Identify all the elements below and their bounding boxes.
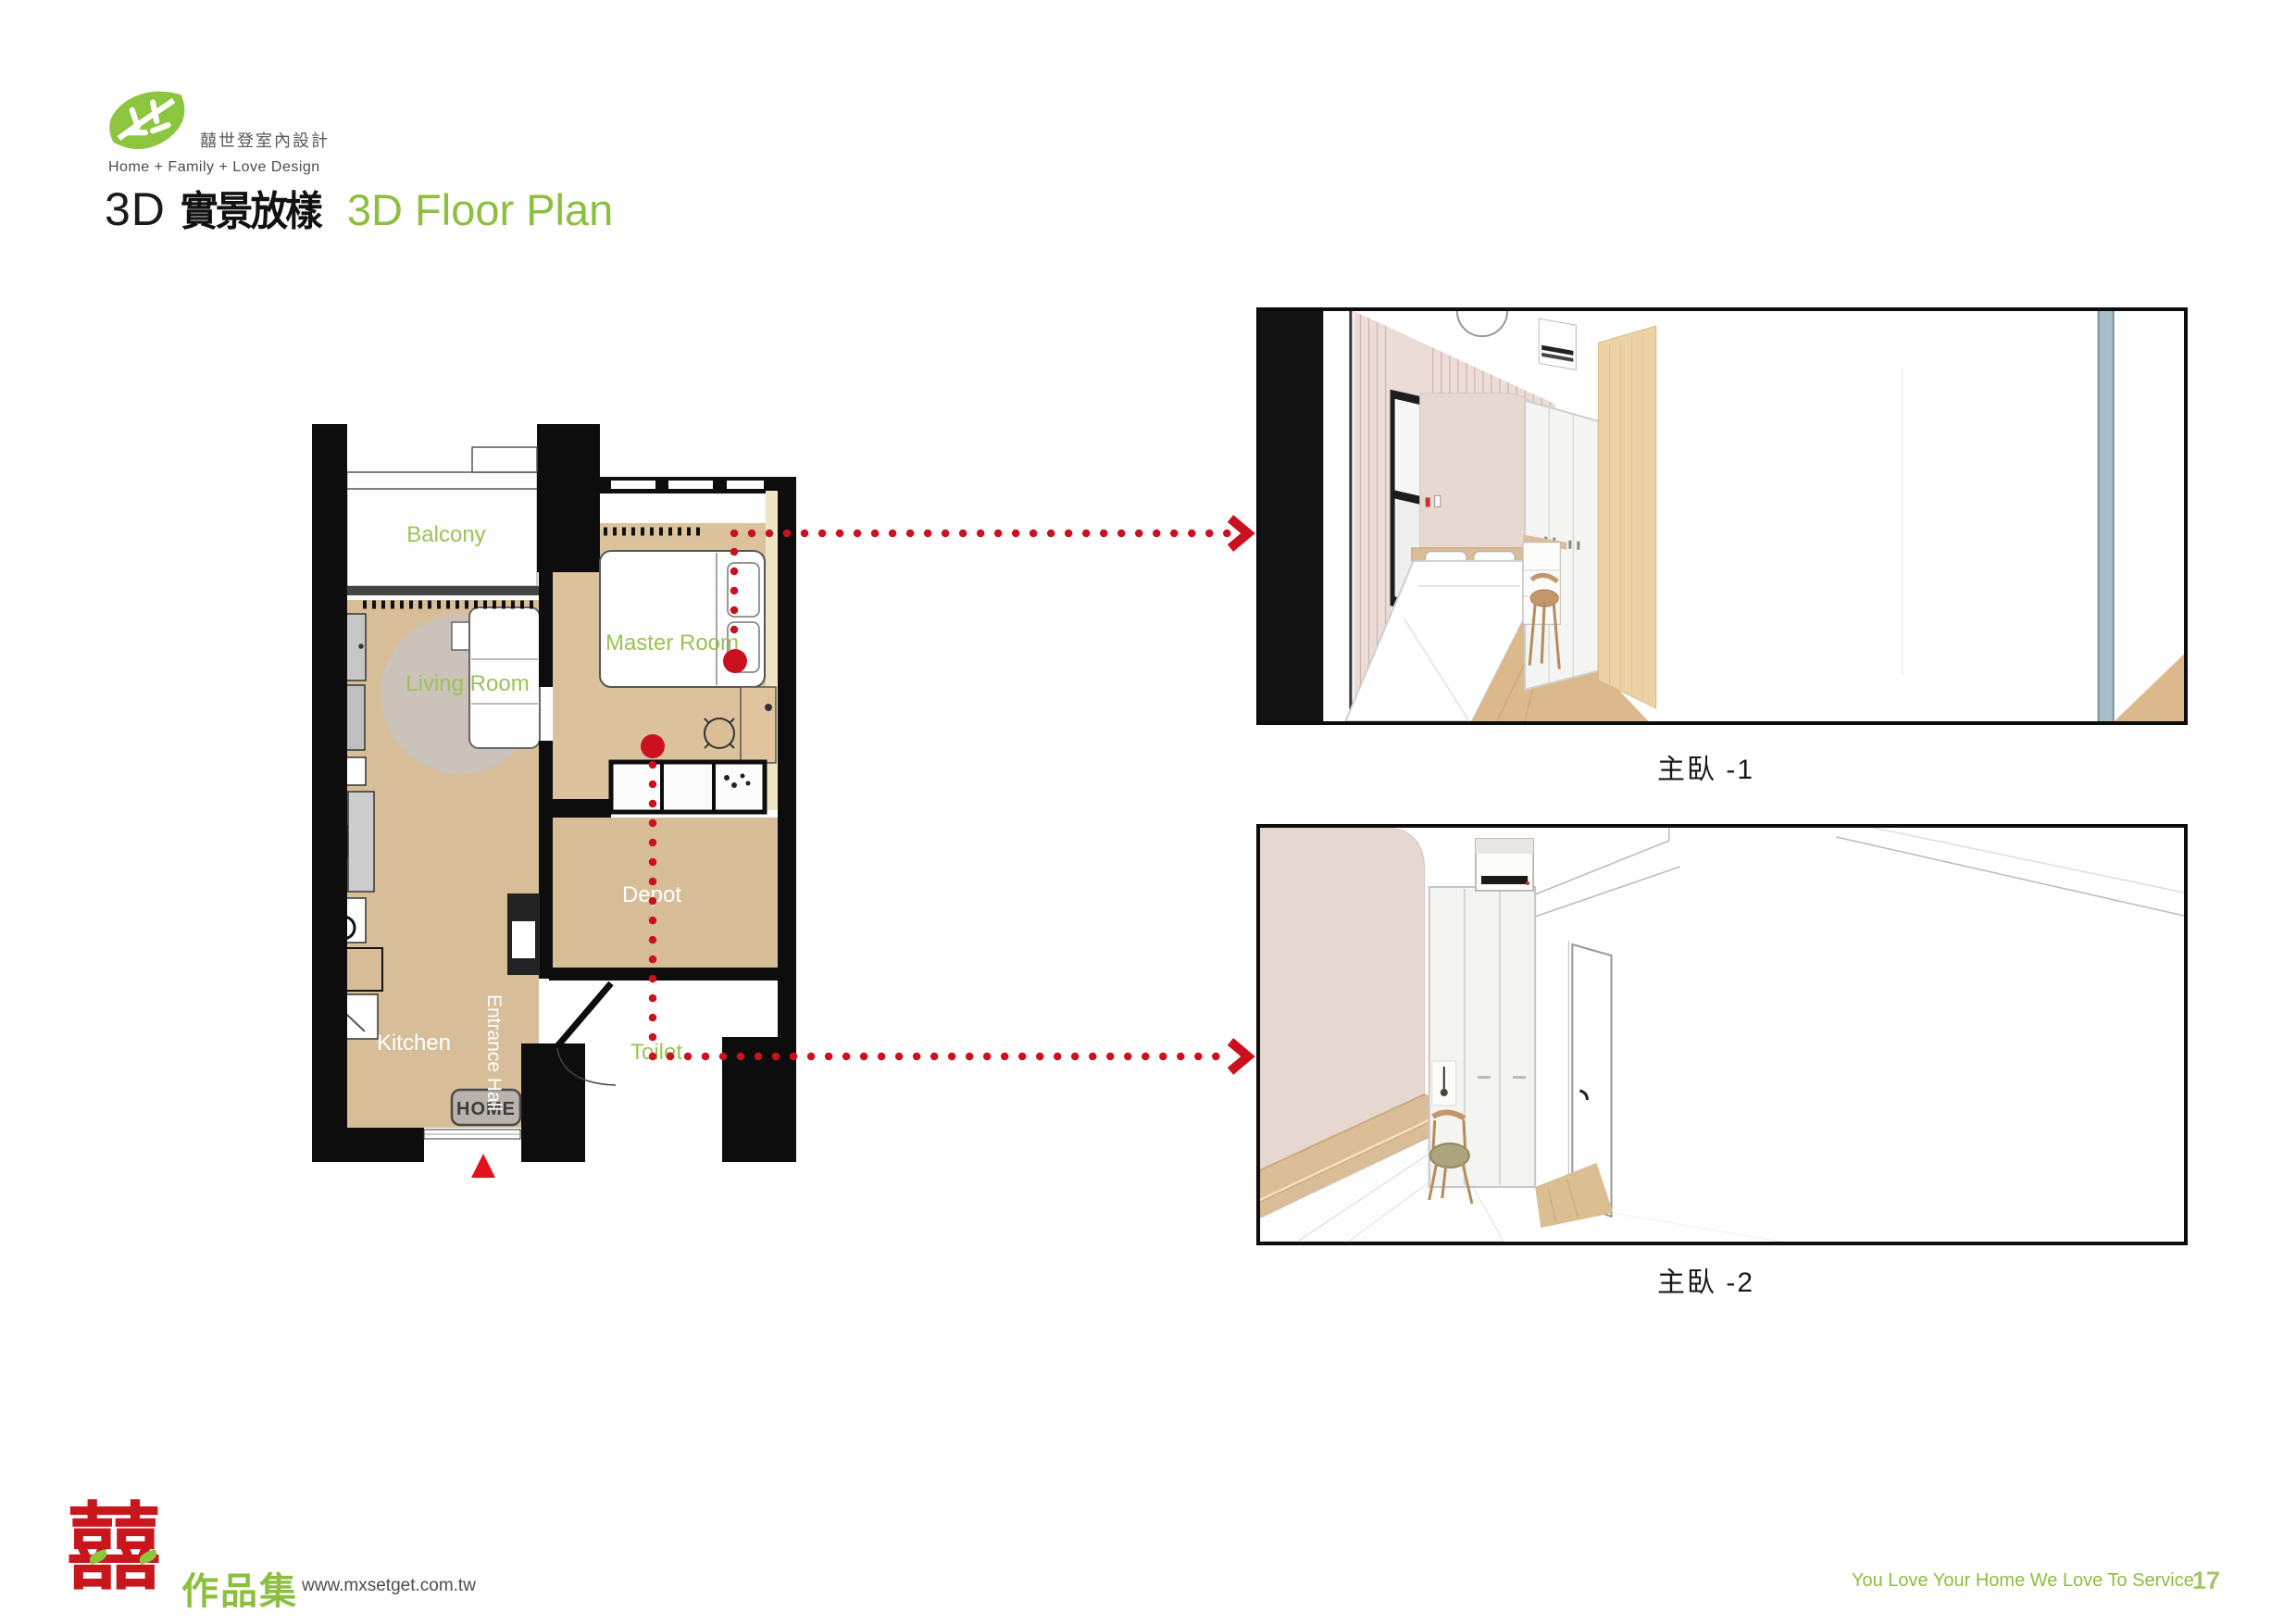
room-label-entrance-hall: Entrance Hall — [483, 994, 505, 1111]
wardrobe-tall — [1429, 887, 1535, 1187]
render-caption-1: 主臥 -1 — [1657, 746, 1754, 787]
website-url: www.mxsetget.com.tw — [302, 1576, 476, 1596]
room-label-depot: Depot — [622, 882, 681, 907]
room-label-living-room: Living Room — [406, 671, 529, 696]
arrowhead-icon-1 — [1230, 518, 1248, 548]
company-name: 囍世登室內設計 — [200, 128, 330, 152]
room-label-balcony: Balcony — [406, 522, 485, 547]
closet-row — [611, 762, 765, 812]
master-bed — [600, 551, 765, 687]
double-happiness-logo: 囍 — [67, 1498, 187, 1600]
page-title: 3D 實景放樣 3D Floor Plan — [105, 178, 613, 237]
headboard-wall — [1420, 394, 1541, 552]
portfolio-label: 作品集 — [181, 1561, 298, 1615]
room-label-master-room: Master Room — [605, 631, 739, 656]
ac-unit — [1476, 839, 1533, 891]
page-title-zh: 實景放樣 — [181, 178, 320, 237]
room-label-kitchen: Kitchen — [377, 1031, 451, 1056]
render-caption-2: 主臥 -2 — [1657, 1259, 1754, 1300]
room-label-toilet: Toilet — [630, 1040, 682, 1065]
glass-partition — [2098, 311, 2115, 721]
wood-panel — [1598, 326, 1655, 708]
page-number: 17 — [2192, 1567, 2220, 1595]
render-master-2-image — [1260, 828, 2184, 1242]
render-master-1-image — [1260, 311, 2184, 721]
page-title-en: 3D Floor Plan — [347, 184, 613, 235]
dark-edge — [1260, 311, 1323, 721]
ac-unit — [1539, 319, 1576, 369]
render-master-2 — [1256, 824, 2188, 1245]
company-tagline: Home + Family + Love Design — [108, 159, 320, 176]
floor-plan: HOME Balcony Living Room Master Room Kit… — [306, 417, 815, 1185]
render-master-1 — [1256, 307, 2188, 725]
leaf-icon — [100, 83, 194, 159]
page-title-prefix: 3D — [105, 182, 166, 236]
footer-slogan: You Love Your Home We Love To Service — [1852, 1570, 2194, 1592]
arrowhead-icon-2 — [1230, 1042, 1248, 1071]
